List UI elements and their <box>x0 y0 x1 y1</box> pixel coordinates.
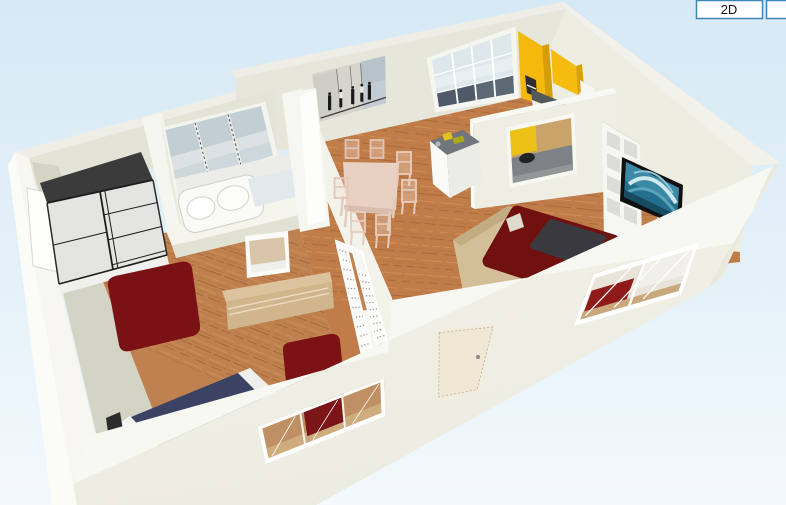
svg-text:2D: 2D <box>721 2 738 17</box>
